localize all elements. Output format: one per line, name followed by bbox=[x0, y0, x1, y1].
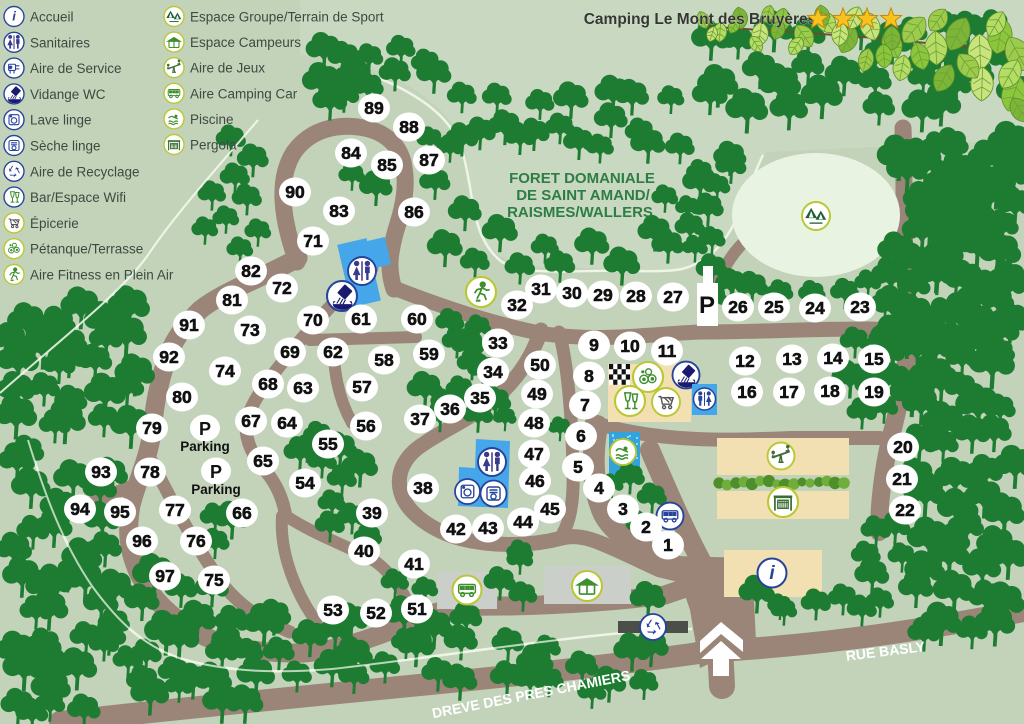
svg-text:83: 83 bbox=[329, 201, 349, 221]
svg-text:17: 17 bbox=[779, 382, 798, 402]
svg-text:Aire Fitness en Plein Air: Aire Fitness en Plein Air bbox=[30, 268, 174, 283]
svg-text:87: 87 bbox=[419, 150, 438, 170]
svg-text:72: 72 bbox=[272, 278, 292, 298]
svg-text:14: 14 bbox=[823, 348, 843, 368]
svg-text:i: i bbox=[769, 563, 775, 584]
svg-text:3: 3 bbox=[618, 499, 628, 519]
svg-text:91: 91 bbox=[179, 315, 199, 335]
svg-text:25: 25 bbox=[764, 297, 784, 317]
svg-text:75: 75 bbox=[204, 570, 224, 590]
svg-text:40: 40 bbox=[354, 541, 374, 561]
svg-text:Parking: Parking bbox=[180, 439, 230, 454]
svg-text:44: 44 bbox=[513, 512, 533, 532]
svg-text:84: 84 bbox=[341, 143, 361, 163]
svg-text:48: 48 bbox=[524, 413, 544, 433]
svg-text:71: 71 bbox=[303, 231, 323, 251]
svg-text:38: 38 bbox=[413, 478, 433, 498]
svg-text:Espace Campeurs: Espace Campeurs bbox=[190, 35, 301, 50]
svg-text:68: 68 bbox=[258, 374, 278, 394]
svg-text:Espace Groupe/Terrain de Sport: Espace Groupe/Terrain de Sport bbox=[190, 10, 384, 25]
svg-text:6: 6 bbox=[576, 426, 586, 446]
svg-text:96: 96 bbox=[132, 531, 152, 551]
svg-text:37: 37 bbox=[410, 409, 429, 429]
svg-text:46: 46 bbox=[525, 471, 545, 491]
svg-text:Sanitaires: Sanitaires bbox=[30, 35, 90, 50]
svg-text:28: 28 bbox=[626, 286, 646, 306]
svg-text:66: 66 bbox=[232, 503, 252, 523]
svg-text:52: 52 bbox=[366, 603, 386, 623]
svg-text:45: 45 bbox=[540, 499, 560, 519]
svg-text:2: 2 bbox=[641, 517, 651, 537]
svg-text:43: 43 bbox=[478, 518, 498, 538]
svg-text:7: 7 bbox=[580, 395, 590, 415]
svg-text:67: 67 bbox=[241, 411, 260, 431]
svg-text:19: 19 bbox=[864, 382, 884, 402]
svg-text:51: 51 bbox=[407, 599, 427, 619]
svg-text:23: 23 bbox=[850, 297, 870, 317]
svg-text:Vidange WC: Vidange WC bbox=[30, 87, 106, 102]
svg-text:55: 55 bbox=[318, 434, 338, 454]
svg-text:Sèche linge: Sèche linge bbox=[30, 139, 101, 154]
svg-text:56: 56 bbox=[356, 416, 376, 436]
svg-text:61: 61 bbox=[351, 309, 371, 329]
svg-text:DE SAINT AMAND/: DE SAINT AMAND/ bbox=[516, 187, 650, 204]
svg-text:35: 35 bbox=[470, 388, 490, 408]
svg-text:36: 36 bbox=[440, 399, 460, 419]
svg-text:58: 58 bbox=[374, 350, 394, 370]
svg-text:Piscine: Piscine bbox=[190, 112, 234, 127]
svg-text:20: 20 bbox=[893, 437, 913, 457]
svg-text:16: 16 bbox=[737, 382, 757, 402]
svg-text:P: P bbox=[699, 292, 715, 319]
svg-text:93: 93 bbox=[91, 462, 111, 482]
svg-text:60: 60 bbox=[407, 309, 427, 329]
svg-text:53: 53 bbox=[323, 600, 343, 620]
svg-text:Pergola: Pergola bbox=[190, 138, 237, 153]
svg-text:18: 18 bbox=[820, 381, 840, 401]
svg-text:95: 95 bbox=[110, 502, 130, 522]
svg-text:Camping Le Mont des Bruyères: Camping Le Mont des Bruyères bbox=[584, 11, 817, 28]
svg-text:31: 31 bbox=[531, 279, 551, 299]
svg-text:39: 39 bbox=[362, 503, 382, 523]
svg-text:Accueil: Accueil bbox=[30, 10, 74, 25]
svg-text:32: 32 bbox=[507, 295, 527, 315]
svg-text:13: 13 bbox=[782, 349, 802, 369]
svg-text:97: 97 bbox=[155, 566, 174, 586]
svg-text:89: 89 bbox=[364, 98, 384, 118]
svg-text:73: 73 bbox=[240, 320, 260, 340]
svg-text:Lave linge: Lave linge bbox=[30, 113, 92, 128]
svg-text:Épicerie: Épicerie bbox=[30, 216, 79, 231]
svg-text:49: 49 bbox=[527, 384, 547, 404]
svg-text:Aire de Service: Aire de Service bbox=[30, 61, 122, 76]
svg-text:30: 30 bbox=[562, 283, 582, 303]
svg-text:78: 78 bbox=[140, 462, 160, 482]
svg-text:P: P bbox=[199, 419, 211, 439]
svg-text:82: 82 bbox=[241, 261, 261, 281]
svg-text:81: 81 bbox=[222, 290, 242, 310]
svg-text:85: 85 bbox=[377, 155, 397, 175]
svg-text:79: 79 bbox=[142, 418, 162, 438]
svg-text:77: 77 bbox=[165, 500, 184, 520]
svg-text:5: 5 bbox=[573, 457, 583, 477]
svg-text:90: 90 bbox=[285, 182, 305, 202]
svg-text:12: 12 bbox=[735, 351, 755, 371]
svg-text:69: 69 bbox=[280, 342, 300, 362]
svg-text:24: 24 bbox=[805, 298, 825, 318]
svg-text:RAISMES/WALLERS: RAISMES/WALLERS bbox=[507, 204, 653, 221]
svg-text:Aire Camping Car: Aire Camping Car bbox=[190, 86, 298, 101]
svg-text:26: 26 bbox=[728, 297, 748, 317]
svg-text:76: 76 bbox=[186, 531, 206, 551]
svg-text:FORET DOMANIALE: FORET DOMANIALE bbox=[509, 170, 655, 187]
svg-text:Bar/Espace Wifi: Bar/Espace Wifi bbox=[30, 190, 126, 205]
svg-text:65: 65 bbox=[253, 451, 273, 471]
svg-text:54: 54 bbox=[295, 473, 315, 493]
svg-text:29: 29 bbox=[593, 285, 613, 305]
svg-text:41: 41 bbox=[404, 554, 424, 574]
svg-text:P: P bbox=[210, 462, 222, 482]
svg-text:62: 62 bbox=[323, 342, 343, 362]
svg-text:Parking: Parking bbox=[191, 482, 241, 497]
svg-text:34: 34 bbox=[483, 362, 503, 382]
svg-text:Aire de Jeux: Aire de Jeux bbox=[190, 61, 265, 76]
svg-text:8: 8 bbox=[584, 366, 594, 386]
svg-text:86: 86 bbox=[404, 202, 424, 222]
svg-text:80: 80 bbox=[172, 387, 192, 407]
svg-text:Aire de Recyclage: Aire de Recyclage bbox=[30, 164, 140, 179]
svg-text:21: 21 bbox=[892, 469, 912, 489]
svg-text:47: 47 bbox=[524, 444, 543, 464]
svg-text:94: 94 bbox=[70, 499, 90, 519]
svg-text:10: 10 bbox=[620, 336, 640, 356]
svg-text:42: 42 bbox=[446, 519, 466, 539]
svg-text:i: i bbox=[12, 9, 16, 24]
svg-text:Pétanque/Terrasse: Pétanque/Terrasse bbox=[30, 242, 143, 257]
svg-text:22: 22 bbox=[895, 500, 915, 520]
svg-text:88: 88 bbox=[399, 117, 419, 137]
svg-text:11: 11 bbox=[658, 341, 677, 361]
svg-text:1: 1 bbox=[663, 535, 673, 555]
svg-text:15: 15 bbox=[864, 349, 884, 369]
svg-text:57: 57 bbox=[352, 377, 371, 397]
svg-text:74: 74 bbox=[215, 361, 235, 381]
svg-text:92: 92 bbox=[159, 347, 179, 367]
svg-text:64: 64 bbox=[277, 413, 297, 433]
svg-text:50: 50 bbox=[530, 355, 550, 375]
svg-text:63: 63 bbox=[293, 378, 313, 398]
svg-text:33: 33 bbox=[488, 333, 508, 353]
svg-text:70: 70 bbox=[303, 310, 323, 330]
svg-text:9: 9 bbox=[589, 335, 599, 355]
svg-text:59: 59 bbox=[419, 344, 439, 364]
svg-text:27: 27 bbox=[663, 287, 682, 307]
svg-text:4: 4 bbox=[594, 478, 604, 498]
